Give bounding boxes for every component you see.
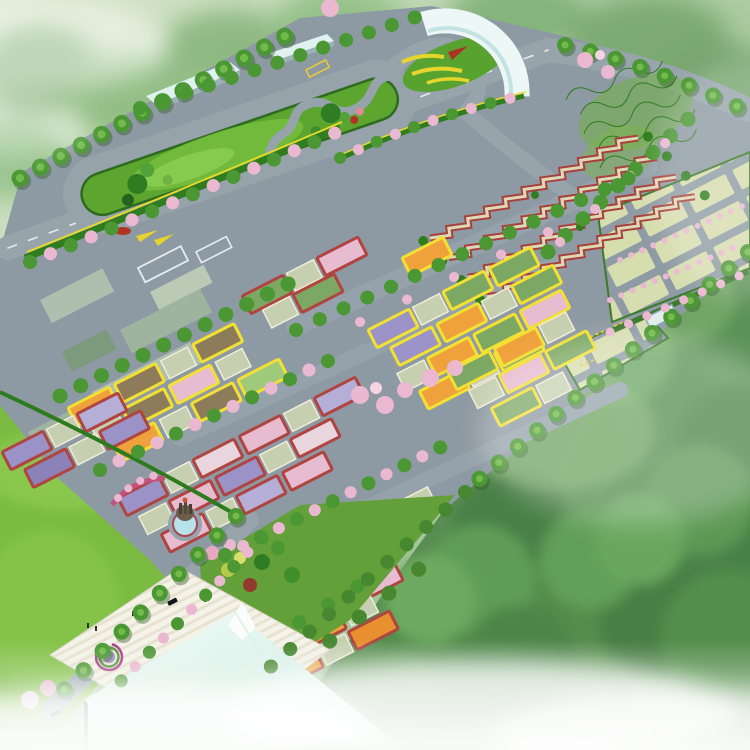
rendering-stage bbox=[0, 0, 750, 750]
site-plan-rendering bbox=[0, 0, 750, 750]
